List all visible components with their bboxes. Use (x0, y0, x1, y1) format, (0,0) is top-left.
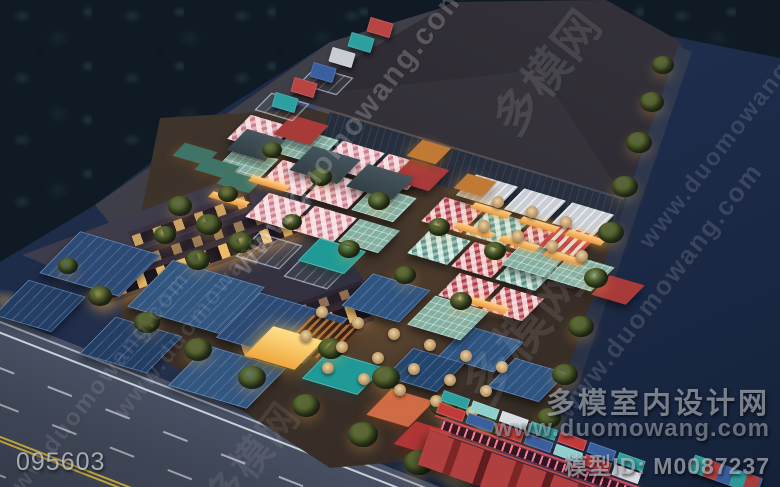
model-id-value: M0087237 (653, 453, 770, 479)
diagonal-watermark-text: www.duomowang.com (109, 176, 312, 424)
diagonal-watermark-text: 多模网 (475, 0, 616, 147)
diagonal-watermark-text: 多模网 (188, 388, 311, 487)
diagonal-watermark-text: www.duomowang.com (634, 6, 780, 254)
diagonal-watermark-text: www.duomowang.com (226, 0, 473, 281)
watermark-site-url: www.duomowang.com (494, 415, 770, 443)
image-code-label: 095603 (16, 448, 105, 477)
render-canvas: www.duomowang.com多模网www.duomowang.comwww… (0, 0, 780, 487)
model-id-label: 模型ID: (564, 453, 646, 479)
watermark-model-id: 模型ID: M0087237 (564, 447, 770, 481)
